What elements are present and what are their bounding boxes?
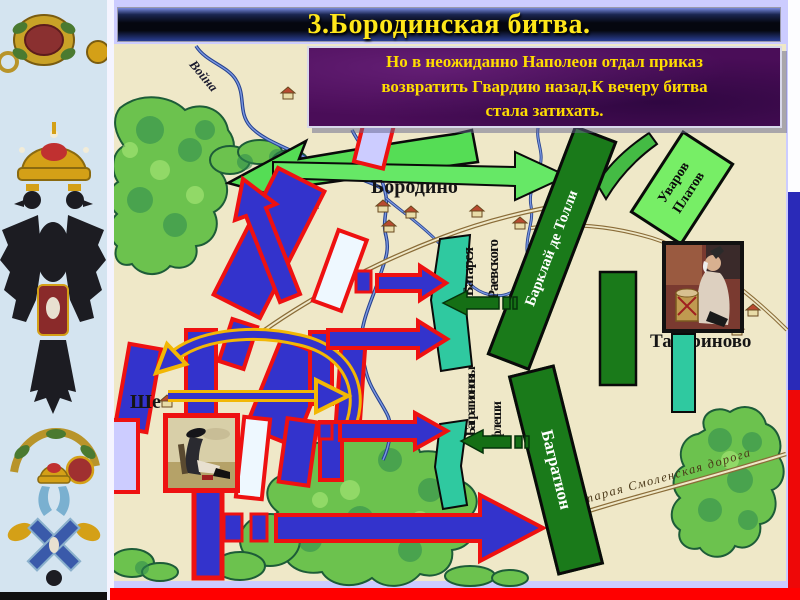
callout-line-3: стала затихать. [309,99,780,124]
slide-title-bar: 3.Бородинская битва. [117,7,781,42]
tatarinovo-teal-block [671,333,696,413]
napoleon-order-callout: Но в неожиданно Наполеон отдал приказ во… [307,46,782,128]
unit-rect-white-west [236,417,270,499]
tatarinovo-label: Татариново [650,331,751,353]
borodino-label: Бородино [371,176,458,199]
unit-rect-blue-5 [279,418,318,486]
russian-reserve-block [600,272,636,385]
callout-line-2: возвратить Гвардию назад.К вечеру битва [309,75,780,100]
kutuzov-portrait-image [662,241,744,333]
bagration-label: Багратион [536,428,575,512]
right-band-white [788,0,800,192]
raevsky-battery-label-line1: Батарея [461,248,478,296]
bagration-fleches-label-line1: Багратионовы [464,368,480,436]
bottom-red-bar [110,588,800,600]
right-band-red [788,390,800,600]
callout-line-1: Но в неожиданно Наполеон отдал приказ [309,50,780,75]
slide-title: 3.Бородинская битва. [308,9,591,41]
bottom-left-sliver [0,592,107,600]
bagration-fleches-label-line2: флеши [490,402,506,440]
strip-divider [107,0,114,600]
slide: Старая Смоленская дорога [0,0,800,600]
imperial-regalia-artwork [0,0,107,600]
imperial-regalia-strip [0,0,107,600]
right-band-blue [788,192,800,390]
napoleon-at-shevardino-image [163,413,240,493]
raevsky-battery-label-line2: Раевского [486,240,503,299]
shevardino-label: Ше [130,391,161,414]
